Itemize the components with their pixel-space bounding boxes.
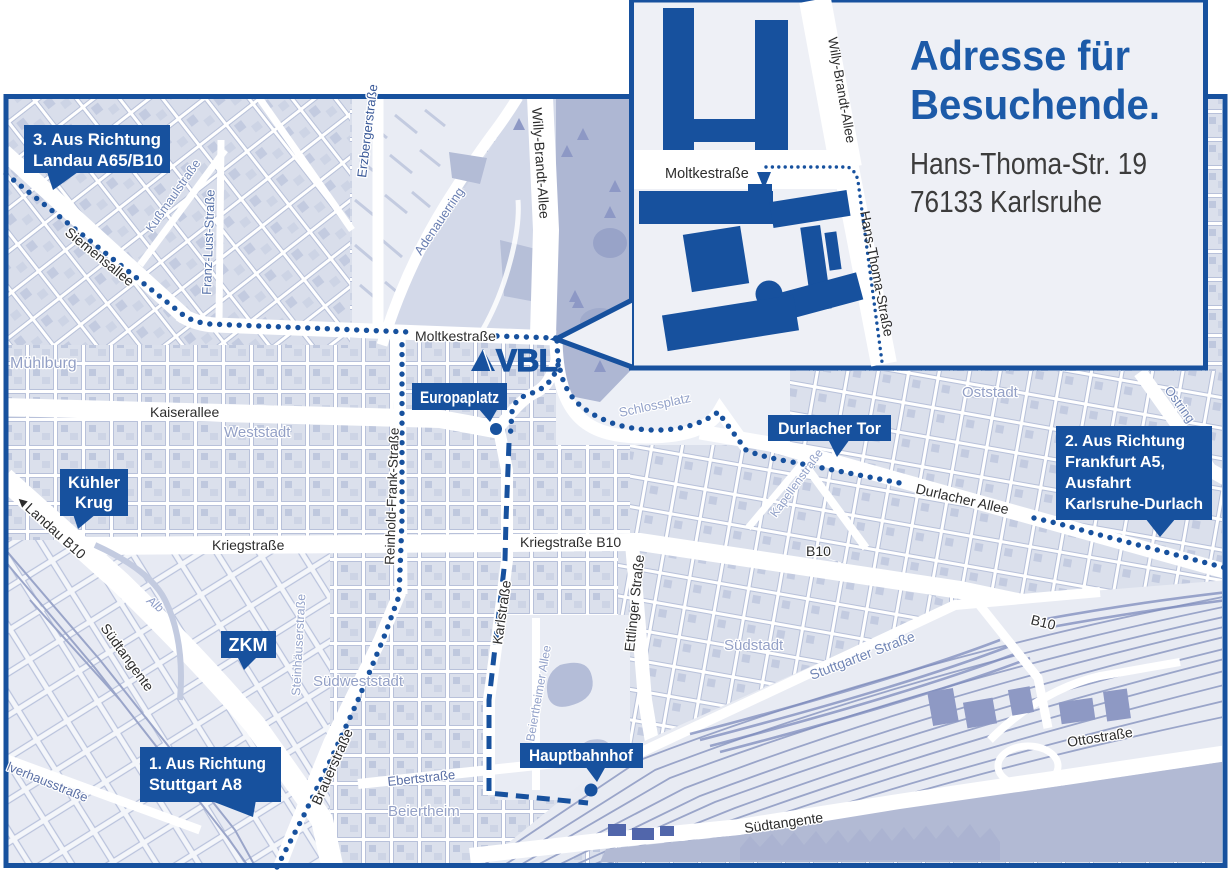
svg-text:Südweststadt: Südweststadt: [313, 673, 404, 690]
svg-text:VBL: VBL: [496, 342, 558, 378]
svg-text:Europaplatz: Europaplatz: [420, 388, 499, 407]
svg-text:Beiertheim: Beiertheim: [388, 803, 460, 820]
svg-text:2. Aus Richtung: 2. Aus Richtung: [1065, 433, 1185, 450]
svg-text:Kaiserallee: Kaiserallee: [150, 404, 219, 420]
svg-text:B10: B10: [806, 543, 831, 559]
svg-text:Kriegstraße: Kriegstraße: [212, 537, 285, 553]
svg-text:Durlacher Tor: Durlacher Tor: [778, 419, 881, 438]
svg-text:Moltkestraße: Moltkestraße: [665, 166, 749, 182]
svg-text:Hans-Thoma-Str. 19: Hans-Thoma-Str. 19: [910, 146, 1147, 181]
svg-text:Frankfurt A5,: Frankfurt A5,: [1065, 454, 1165, 471]
svg-text:1. Aus Richtung: 1. Aus Richtung: [149, 754, 266, 773]
svg-text:76133 Karlsruhe: 76133 Karlsruhe: [910, 184, 1102, 219]
svg-text:Oststadt: Oststadt: [962, 384, 1019, 401]
svg-text:Kühler: Kühler: [68, 473, 120, 492]
svg-text:Ausfahrt: Ausfahrt: [1065, 475, 1132, 492]
svg-text:Weststadt: Weststadt: [224, 424, 291, 441]
svg-text:Besuchende.: Besuchende.: [910, 81, 1160, 128]
svg-text:Moltkestraße: Moltkestraße: [415, 328, 496, 344]
svg-text:3. Aus Richtung: 3. Aus Richtung: [33, 130, 161, 149]
svg-text:Adresse für: Adresse für: [910, 32, 1130, 79]
svg-text:Kriegstraße B10: Kriegstraße B10: [520, 534, 621, 550]
svg-text:Südstadt: Südstadt: [724, 637, 784, 654]
svg-text:Karlsruhe-Durlach: Karlsruhe-Durlach: [1065, 496, 1203, 513]
svg-text:Krug: Krug: [75, 493, 113, 512]
svg-text:Hauptbahnhof: Hauptbahnhof: [529, 746, 633, 765]
svg-text:Stuttgart A8: Stuttgart A8: [149, 775, 242, 794]
svg-text:ZKM: ZKM: [229, 635, 268, 655]
svg-text:Mühlburg: Mühlburg: [10, 355, 77, 372]
svg-text:Landau A65/B10: Landau A65/B10: [33, 151, 163, 170]
